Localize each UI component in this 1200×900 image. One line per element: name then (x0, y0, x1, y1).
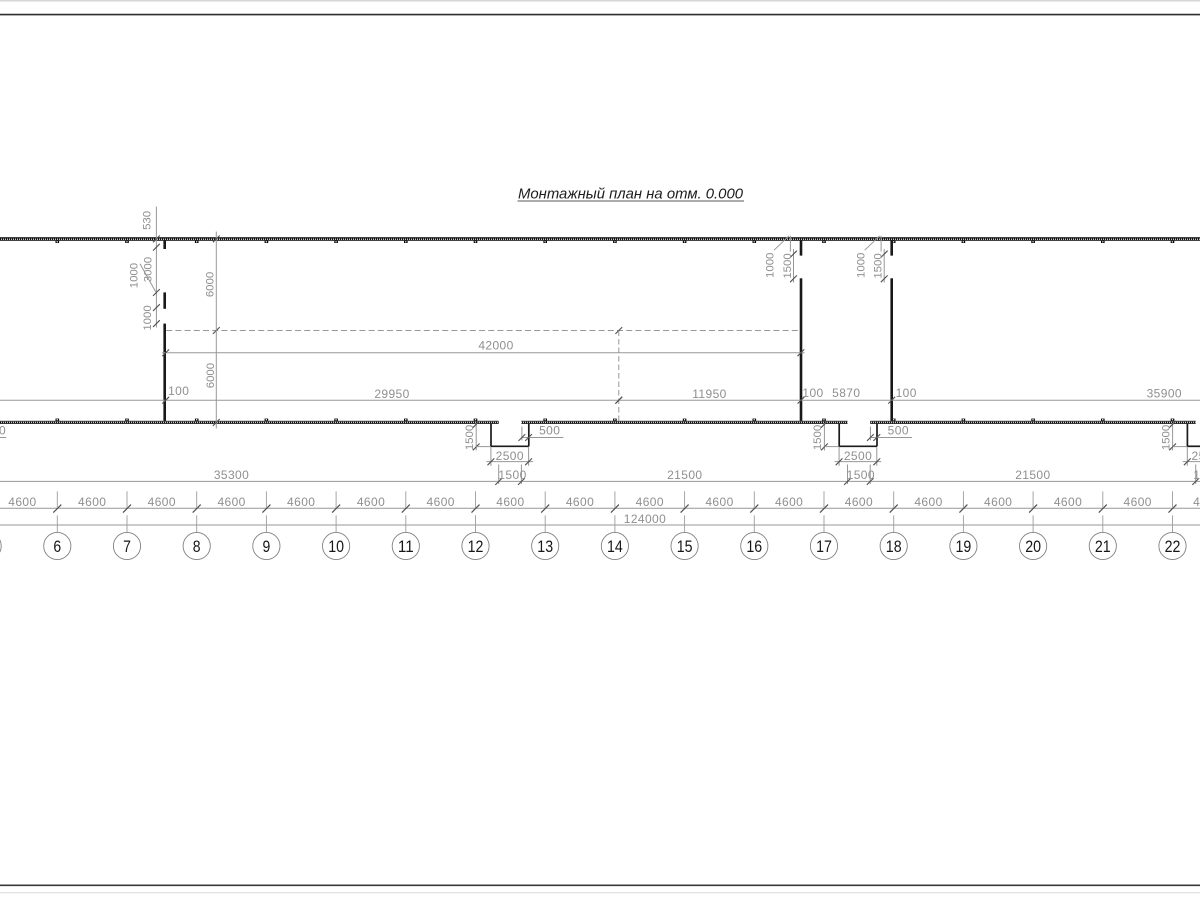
svg-text:11950: 11950 (692, 387, 726, 401)
svg-text:100: 100 (802, 386, 823, 400)
svg-text:500: 500 (888, 424, 909, 438)
svg-text:100: 100 (896, 386, 917, 400)
svg-text:4600: 4600 (148, 495, 176, 509)
svg-text:6000: 6000 (205, 363, 217, 388)
svg-text:100: 100 (168, 384, 189, 398)
svg-text:22: 22 (1165, 537, 1181, 556)
svg-text:1000: 1000 (765, 253, 777, 278)
svg-text:4600: 4600 (636, 495, 664, 509)
svg-text:6: 6 (53, 537, 61, 556)
svg-text:35300: 35300 (214, 468, 249, 482)
svg-text:Монтажный план на отм. 0.000: Монтажный план на отм. 0.000 (518, 185, 744, 202)
svg-text:1000: 1000 (142, 305, 154, 330)
svg-text:21500: 21500 (1015, 468, 1050, 482)
svg-text:1500: 1500 (873, 253, 885, 278)
svg-text:20: 20 (1025, 537, 1041, 556)
svg-text:530: 530 (142, 211, 154, 230)
svg-text:2500: 2500 (1192, 449, 1200, 463)
svg-text:4600: 4600 (78, 495, 106, 509)
svg-text:16: 16 (746, 537, 762, 556)
svg-text:500: 500 (539, 424, 560, 438)
svg-text:1500: 1500 (812, 425, 824, 450)
svg-text:124000: 124000 (624, 512, 666, 526)
svg-text:4600: 4600 (8, 495, 36, 509)
svg-text:4600: 4600 (705, 495, 733, 509)
svg-text:6000: 6000 (205, 272, 217, 297)
svg-text:29950: 29950 (374, 387, 409, 401)
svg-text:4600: 4600 (914, 495, 942, 509)
svg-text:4600: 4600 (845, 495, 873, 509)
svg-text:4600: 4600 (287, 495, 315, 509)
svg-text:4600: 4600 (217, 495, 245, 509)
svg-text:1500: 1500 (782, 253, 794, 278)
svg-text:13: 13 (537, 537, 553, 556)
svg-text:17: 17 (816, 537, 832, 556)
svg-text:10: 10 (328, 537, 344, 556)
svg-text:4600: 4600 (775, 495, 803, 509)
svg-text:4600: 4600 (1193, 495, 1200, 509)
svg-text:4600: 4600 (984, 495, 1012, 509)
svg-text:1500: 1500 (464, 425, 476, 450)
svg-text:42000: 42000 (478, 338, 513, 352)
svg-text:1500: 1500 (847, 468, 875, 482)
svg-text:15: 15 (677, 537, 693, 556)
svg-text:2500: 2500 (496, 449, 524, 463)
svg-text:9: 9 (263, 537, 271, 556)
svg-text:4600: 4600 (566, 495, 594, 509)
svg-text:12: 12 (468, 537, 484, 556)
svg-text:1500: 1500 (498, 468, 526, 482)
svg-text:21: 21 (1095, 537, 1111, 556)
svg-text:19: 19 (956, 537, 972, 556)
svg-text:4600: 4600 (357, 495, 385, 509)
svg-text:2500: 2500 (844, 449, 872, 463)
svg-text:4600: 4600 (1124, 495, 1152, 509)
svg-text:4600: 4600 (427, 495, 455, 509)
svg-text:7: 7 (123, 537, 131, 556)
svg-text:1500: 1500 (1193, 468, 1200, 482)
svg-text:11: 11 (398, 537, 414, 556)
svg-text:8: 8 (193, 537, 201, 556)
svg-text:1000: 1000 (855, 253, 867, 278)
svg-text:1500: 1500 (1160, 425, 1172, 450)
svg-text:1000: 1000 (129, 263, 141, 288)
svg-text:21500: 21500 (667, 468, 702, 482)
svg-text:500: 500 (0, 424, 6, 438)
svg-text:14: 14 (607, 537, 623, 556)
svg-text:5870: 5870 (832, 386, 860, 400)
svg-text:35900: 35900 (1147, 387, 1182, 401)
svg-text:4600: 4600 (496, 495, 524, 509)
svg-text:18: 18 (886, 537, 902, 556)
svg-text:4600: 4600 (1054, 495, 1082, 509)
